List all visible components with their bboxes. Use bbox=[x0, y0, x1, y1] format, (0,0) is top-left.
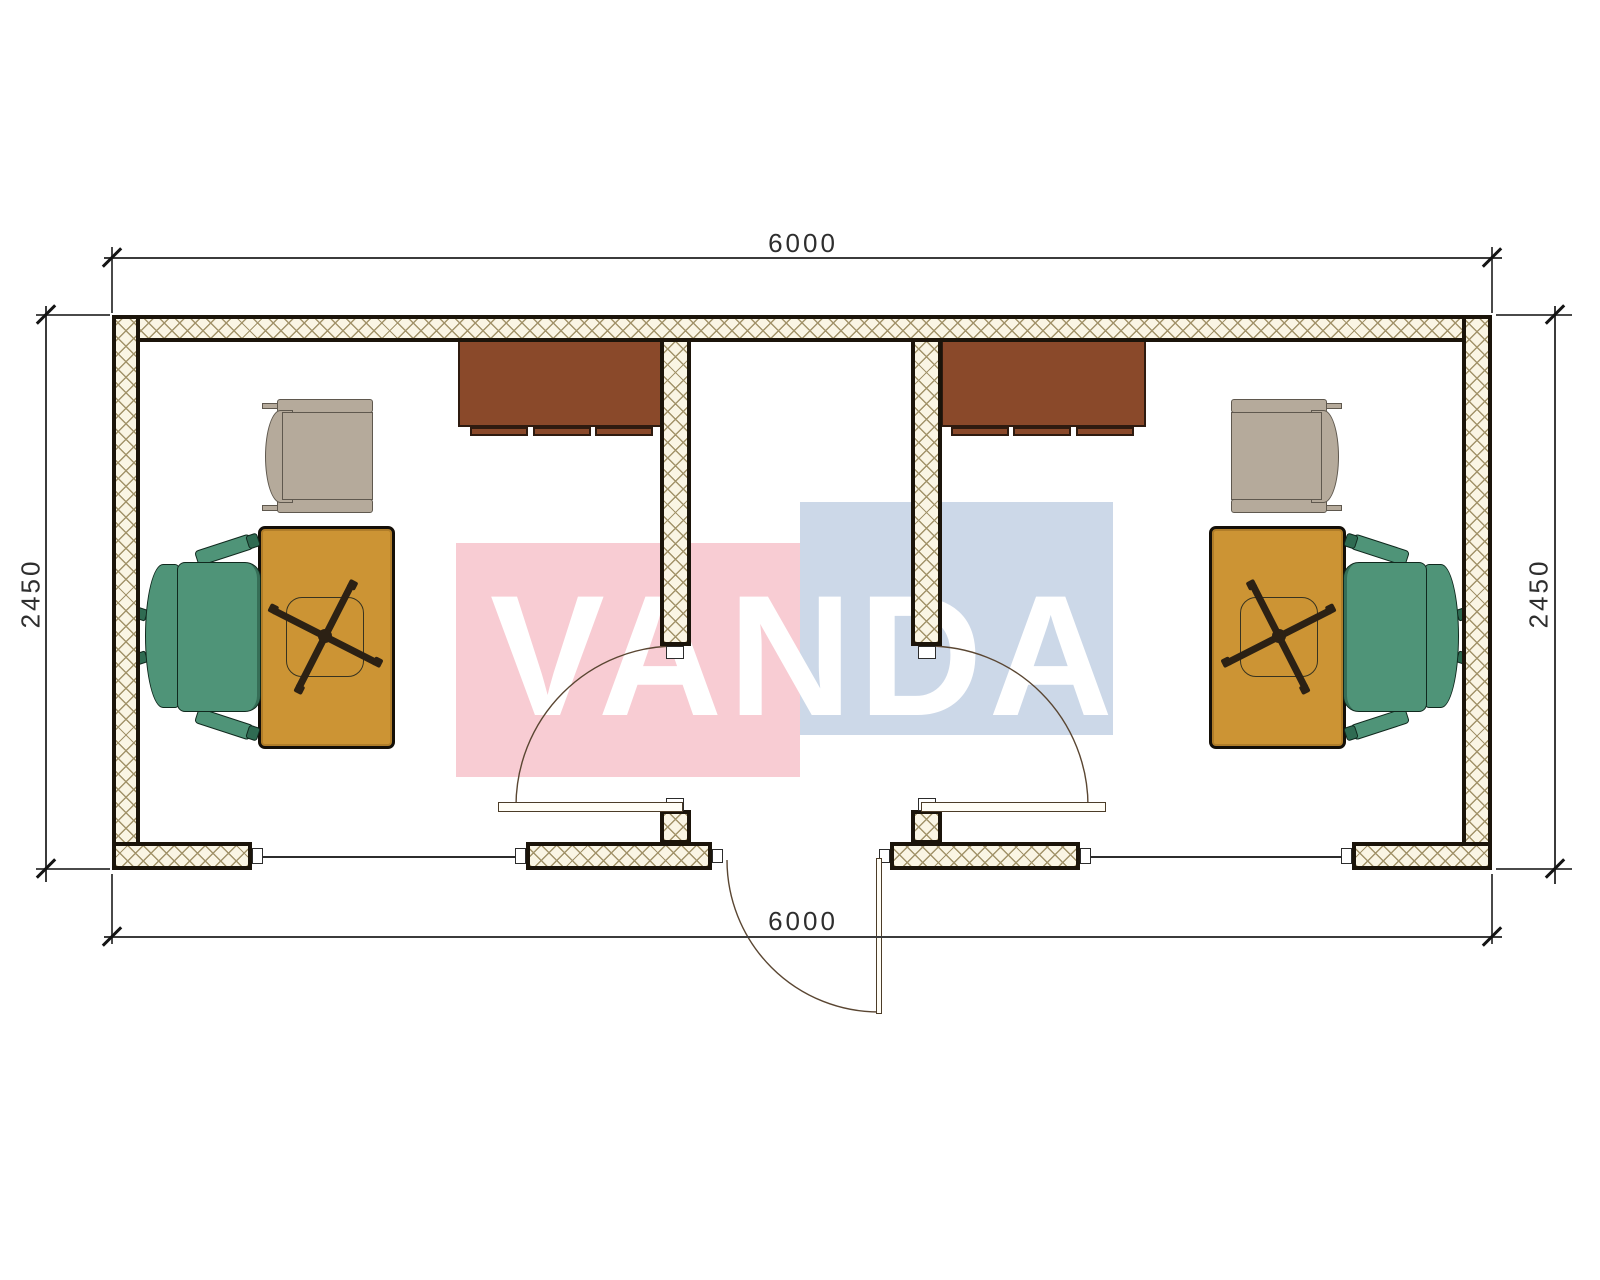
cabinet-left bbox=[458, 340, 663, 436]
window-frame bbox=[1341, 848, 1352, 864]
window-frame bbox=[1080, 848, 1091, 864]
door-jamb bbox=[712, 849, 723, 863]
chair-back bbox=[145, 564, 181, 708]
chair-foot bbox=[262, 505, 278, 511]
guest-chair-right bbox=[1229, 397, 1342, 515]
cabinet-foot bbox=[470, 427, 528, 436]
chair-foot bbox=[1326, 505, 1342, 511]
dimension-label-top: 6000 bbox=[738, 228, 868, 259]
desk-left bbox=[258, 526, 395, 749]
swivel-base-hub bbox=[1272, 629, 1286, 643]
chair-armrest bbox=[1350, 707, 1410, 740]
chair-foot bbox=[262, 403, 278, 409]
chair-seat bbox=[1343, 562, 1427, 712]
extension-line bbox=[1496, 314, 1572, 316]
wall-right bbox=[1462, 315, 1492, 870]
wall-left bbox=[112, 315, 140, 870]
window-frame bbox=[515, 848, 526, 864]
dimension-label-bottom: 6000 bbox=[738, 906, 868, 937]
door-jamb bbox=[918, 646, 936, 659]
dimension-label-right: 2450 bbox=[1524, 529, 1555, 659]
cabinet-body bbox=[941, 340, 1146, 427]
partition-stub-right bbox=[911, 810, 942, 844]
chair-seat bbox=[177, 562, 261, 712]
cabinet-body bbox=[458, 340, 663, 427]
desk-right bbox=[1209, 526, 1346, 749]
task-chair-right bbox=[1339, 556, 1461, 718]
window-left bbox=[263, 856, 515, 858]
cabinet-foot bbox=[951, 427, 1009, 436]
floor-plan-canvas: VANDA bbox=[0, 0, 1600, 1280]
swivel-base-hub bbox=[318, 629, 332, 643]
wall-top bbox=[112, 315, 1492, 342]
partition-stub-left bbox=[660, 810, 691, 844]
watermark-text: VANDA bbox=[490, 570, 1119, 742]
door-leaf-right-room bbox=[921, 802, 1106, 812]
chair-seat bbox=[1231, 412, 1322, 500]
window-frame bbox=[252, 848, 263, 864]
wall-bottom-segment bbox=[1352, 842, 1492, 870]
door-leaf-left-room bbox=[498, 802, 683, 812]
chair-seat bbox=[282, 412, 373, 500]
dimension-label-left: 2450 bbox=[16, 529, 47, 659]
window-right bbox=[1091, 856, 1341, 858]
wall-bottom-segment bbox=[890, 842, 1080, 870]
cabinet-foot bbox=[595, 427, 653, 436]
task-chair-left bbox=[143, 556, 265, 718]
partition-wall-right bbox=[911, 338, 942, 646]
extension-line bbox=[1496, 868, 1572, 870]
wall-bottom-segment bbox=[112, 842, 252, 870]
chair-back bbox=[1423, 564, 1459, 708]
door-jamb bbox=[666, 646, 684, 659]
cabinet-foot bbox=[533, 427, 591, 436]
cabinet-foot bbox=[1076, 427, 1134, 436]
cabinet-right bbox=[941, 340, 1146, 436]
guest-chair-left bbox=[262, 397, 375, 515]
wall-bottom-segment bbox=[526, 842, 712, 870]
partition-wall-left bbox=[660, 338, 691, 646]
chair-foot bbox=[1326, 403, 1342, 409]
cabinet-foot bbox=[1013, 427, 1071, 436]
